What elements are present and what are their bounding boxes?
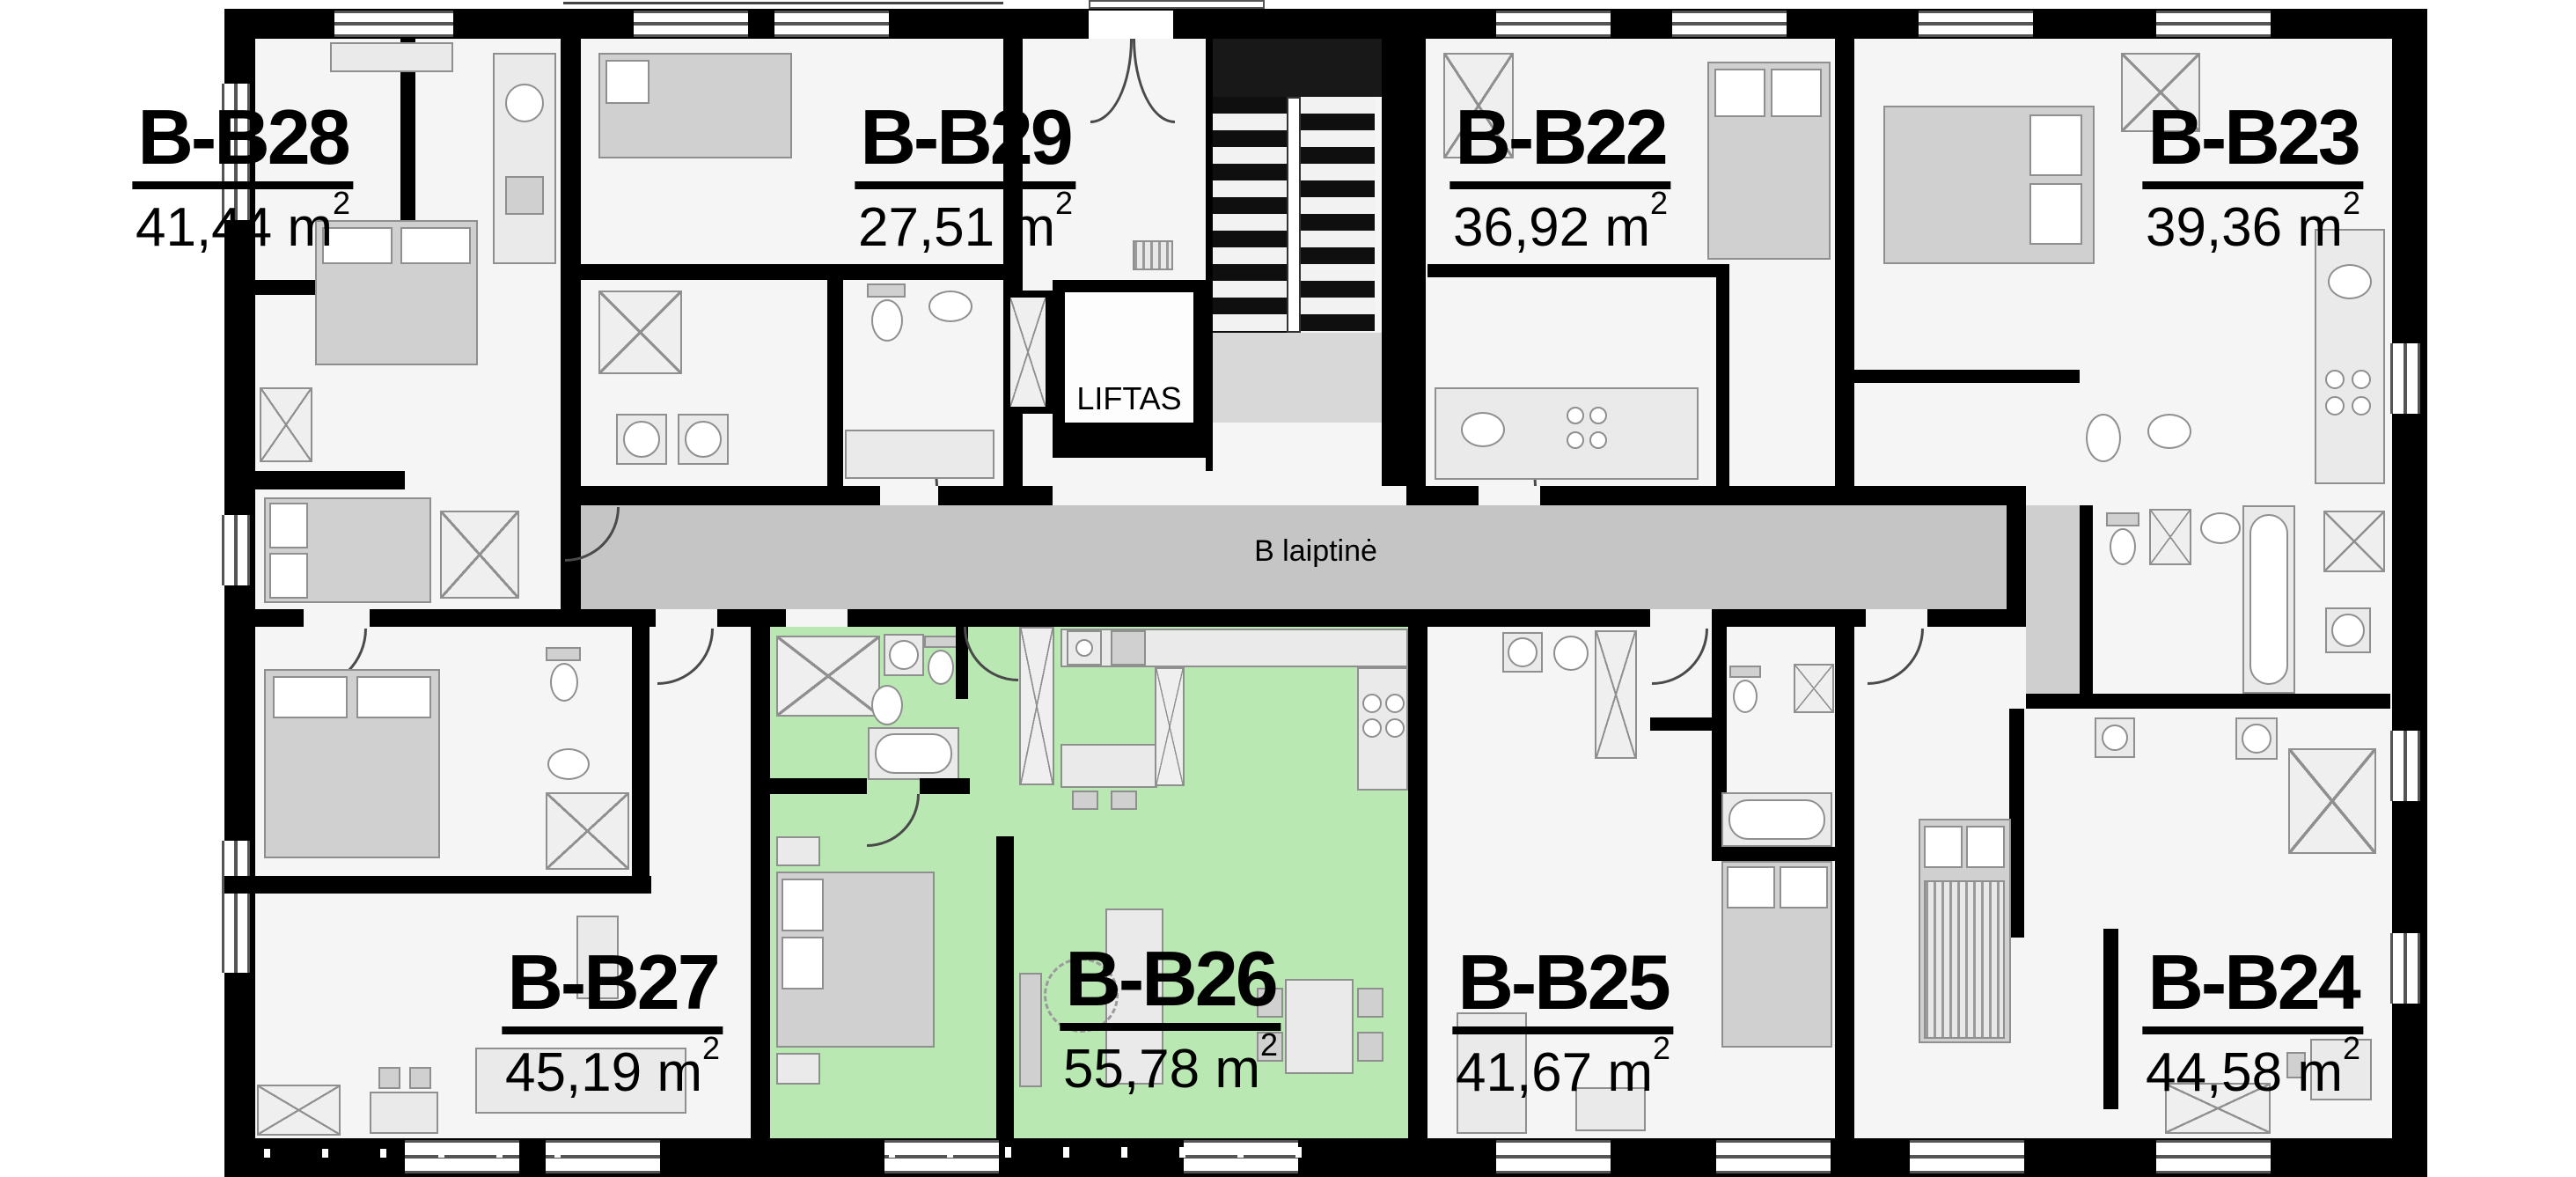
wall [563, 486, 880, 505]
sink [2102, 725, 2128, 751]
toilet [1733, 680, 1758, 713]
stove-burner [1362, 694, 1382, 713]
window [2156, 1140, 2271, 1173]
wall [2080, 505, 2093, 694]
toilet-tank [924, 636, 958, 648]
stair-stringer [1287, 97, 1301, 333]
stove-burner [1567, 407, 1584, 424]
apartment-area: 36,92 m2 [1449, 196, 1670, 259]
nightstand [776, 836, 820, 866]
stove-burner [1567, 431, 1584, 449]
stair-upper-flight [1213, 39, 1382, 97]
pillow [273, 676, 348, 718]
apartment-id: B-B24 [2142, 944, 2363, 1034]
window [2390, 343, 2420, 414]
pillow [782, 879, 824, 931]
stove [505, 176, 544, 215]
shower [2149, 509, 2191, 565]
pillow [1727, 866, 1775, 908]
stove-burner [1589, 407, 1607, 424]
apartment-label-b-b29[interactable]: B-B29 27,51 m2 [855, 99, 1075, 259]
wall [848, 609, 1650, 627]
chair [1111, 791, 1137, 810]
kitchen-sink [1461, 412, 1505, 447]
wall [2007, 486, 2026, 627]
stair-landing [1213, 333, 1382, 423]
nightstand [776, 1053, 820, 1085]
apartment-label-b-b28[interactable]: B-B28 41,44 m2 [132, 99, 353, 259]
apartment-area: 55,78 m2 [1060, 1038, 1281, 1100]
wall [1835, 627, 1854, 1138]
wall [751, 627, 770, 1138]
wall [224, 471, 405, 489]
apartment-label-b-b23[interactable]: B-B23 39,36 m2 [2142, 99, 2363, 259]
vanity-cabinet [845, 430, 994, 479]
chair [378, 1067, 400, 1089]
balcony-railing [264, 1149, 572, 1158]
apartment-area: 44,58 m2 [2142, 1041, 2363, 1104]
window [222, 515, 250, 585]
wall [717, 609, 786, 627]
chair [1072, 791, 1098, 810]
sink [928, 291, 972, 322]
wall [1053, 435, 1206, 458]
window [1910, 1140, 2024, 1173]
kitchen-island [1060, 744, 1157, 788]
pillow [1771, 69, 1822, 117]
bathtub-basin [2249, 514, 2288, 685]
toilet [2110, 528, 2136, 565]
pillow [1966, 826, 2005, 868]
wardrobe [260, 387, 312, 462]
washing-machine-drum [1508, 637, 1538, 667]
shower [546, 792, 629, 870]
apartment-label-b-b22[interactable]: B-B22 36,92 m2 [1449, 99, 1670, 259]
apartment-area: 27,51 m2 [855, 196, 1075, 259]
apartment-label-b-b25[interactable]: B-B25 41,67 m2 [1452, 944, 1673, 1104]
wall [1650, 717, 1712, 731]
shower [598, 291, 682, 374]
apartment-id: B-B28 [132, 99, 353, 189]
toilet [871, 299, 903, 342]
wardrobe [776, 636, 880, 717]
sink [1553, 636, 1589, 671]
apartment-area: 41,44 m2 [132, 196, 353, 259]
tv-unit [1019, 973, 1042, 1087]
floor-plan-canvas: LIFTAS B laiptinė [0, 0, 2576, 1177]
window [1919, 11, 2033, 37]
wall [827, 280, 843, 486]
wall [1426, 486, 1479, 505]
kitchen-sink [505, 84, 544, 122]
dryer-drum [685, 421, 722, 458]
wall [1540, 486, 2007, 505]
apartment-label-b-b24[interactable]: B-B24 44,58 m2 [2142, 944, 2363, 1104]
window [1496, 1140, 1611, 1173]
wall [2026, 694, 2390, 709]
stove-burner [2352, 396, 2371, 416]
wall [1406, 39, 1426, 505]
shower [1794, 664, 1834, 713]
wardrobe [1595, 630, 1637, 759]
wall [1835, 39, 1854, 505]
window [222, 841, 250, 973]
window [634, 11, 748, 37]
pillow [1714, 69, 1765, 117]
wall [1206, 39, 1213, 471]
apartment-id: B-B29 [855, 99, 1075, 189]
elevator-room: LIFTAS [1053, 280, 1206, 435]
floor-plan: { "labels": { "unit": "m", "unit_sup": "… [0, 0, 2576, 1177]
sofa [330, 42, 453, 72]
wall [224, 876, 651, 894]
washing-machine-drum [2331, 614, 2365, 647]
pillow [1780, 866, 1828, 908]
toilet-tank [546, 647, 581, 661]
pillow [1924, 826, 1963, 868]
wall [938, 486, 1053, 505]
wardrobe [257, 1085, 341, 1136]
balcony-railing [889, 1147, 1329, 1158]
pantry [1155, 667, 1185, 786]
apartment-id: B-B27 [502, 944, 723, 1034]
window [2390, 731, 2420, 801]
sink [547, 748, 590, 780]
hall-closet [1019, 627, 1054, 785]
pillow [356, 676, 431, 718]
wall [920, 778, 970, 794]
sink [2200, 512, 2241, 544]
chair [409, 1067, 431, 1089]
wardrobe [440, 511, 519, 599]
apartment-label-b-b27[interactable]: B-B27 45,19 m2 [502, 944, 723, 1104]
pillow [2029, 114, 2082, 176]
apartment-area: 39,36 m2 [2142, 196, 2363, 259]
stove-burner [1385, 694, 1405, 713]
wall [224, 9, 2427, 39]
stove-burner [2325, 370, 2345, 389]
wall [1712, 847, 1835, 861]
window [774, 11, 889, 37]
doormat [1133, 240, 1173, 270]
window [334, 11, 453, 37]
toilet [550, 663, 578, 702]
entrance-door-opening [1089, 11, 1173, 39]
balcony-railing [1089, 0, 1265, 9]
hallway [2026, 505, 2080, 694]
balcony-railing [563, 2, 1003, 7]
pillow [269, 553, 308, 599]
window [1496, 11, 1611, 37]
wall [1408, 627, 1427, 1138]
apartment-id: B-B23 [2142, 99, 2363, 189]
apartment-area: 45,19 m2 [502, 1041, 723, 1104]
washing-machine-drum [2242, 724, 2271, 754]
apartment-id: B-B22 [1449, 99, 1670, 189]
bathtub-basin [875, 733, 952, 774]
stove-burner [1589, 431, 1607, 449]
wall [2103, 929, 2118, 1109]
apartment-id: B-B26 [1060, 940, 1281, 1031]
toilet-tank [867, 283, 906, 298]
wall [770, 778, 867, 794]
staircase-label: B laiptinė [1254, 534, 1377, 569]
pillow [269, 503, 308, 548]
window [1672, 11, 1787, 37]
wall [1712, 609, 1866, 627]
stove-burner [2352, 370, 2371, 389]
wall [1854, 370, 2080, 383]
sink [2147, 414, 2191, 449]
stove-burner [1385, 718, 1405, 738]
elevator-label: LIFTAS [1076, 380, 1181, 417]
dining-table [1285, 979, 1354, 1074]
stairs [1213, 97, 1287, 333]
stairs [1301, 97, 1375, 333]
table [370, 1092, 438, 1134]
toilet [928, 650, 954, 685]
kitchen-sink-drain [1075, 639, 1093, 657]
wall [1716, 264, 1729, 486]
pillow [782, 937, 824, 989]
window [1716, 1140, 1831, 1173]
wall [996, 836, 1014, 1138]
closet [2323, 511, 2385, 572]
stove-burner [2325, 396, 2345, 416]
pillow [605, 60, 650, 104]
shaft-duct [1003, 291, 1053, 414]
sink [871, 685, 903, 725]
washing-machine-drum [889, 640, 919, 670]
chair [1357, 988, 1383, 1018]
toilet-tank [1729, 666, 1761, 678]
wardrobe [2288, 748, 2376, 854]
toilet [2086, 414, 2121, 462]
wall [632, 627, 650, 891]
wall [581, 264, 1003, 280]
bathtub-basin [1728, 799, 1825, 840]
window [2156, 11, 2271, 37]
appliance [1111, 630, 1146, 666]
wall [1382, 39, 1406, 486]
kitchen-sink [2328, 264, 2372, 299]
apartment-area: 41,67 m2 [1452, 1041, 1673, 1104]
washing-machine-drum [623, 421, 660, 458]
window [2390, 933, 2420, 1004]
wall [370, 609, 656, 627]
toilet-tank [2106, 512, 2139, 526]
wall [1427, 264, 1718, 277]
chair [1357, 1032, 1383, 1062]
apartment-label-b-b26[interactable]: B-B26 55,78 m2 [1060, 940, 1281, 1100]
wall [2009, 709, 2024, 938]
bed-blanket [1924, 880, 2005, 1039]
pillow [400, 227, 471, 264]
wall [224, 609, 304, 627]
pillow [2029, 183, 2082, 245]
stove-burner [1362, 718, 1382, 738]
apartment-id: B-B25 [1452, 944, 1673, 1034]
